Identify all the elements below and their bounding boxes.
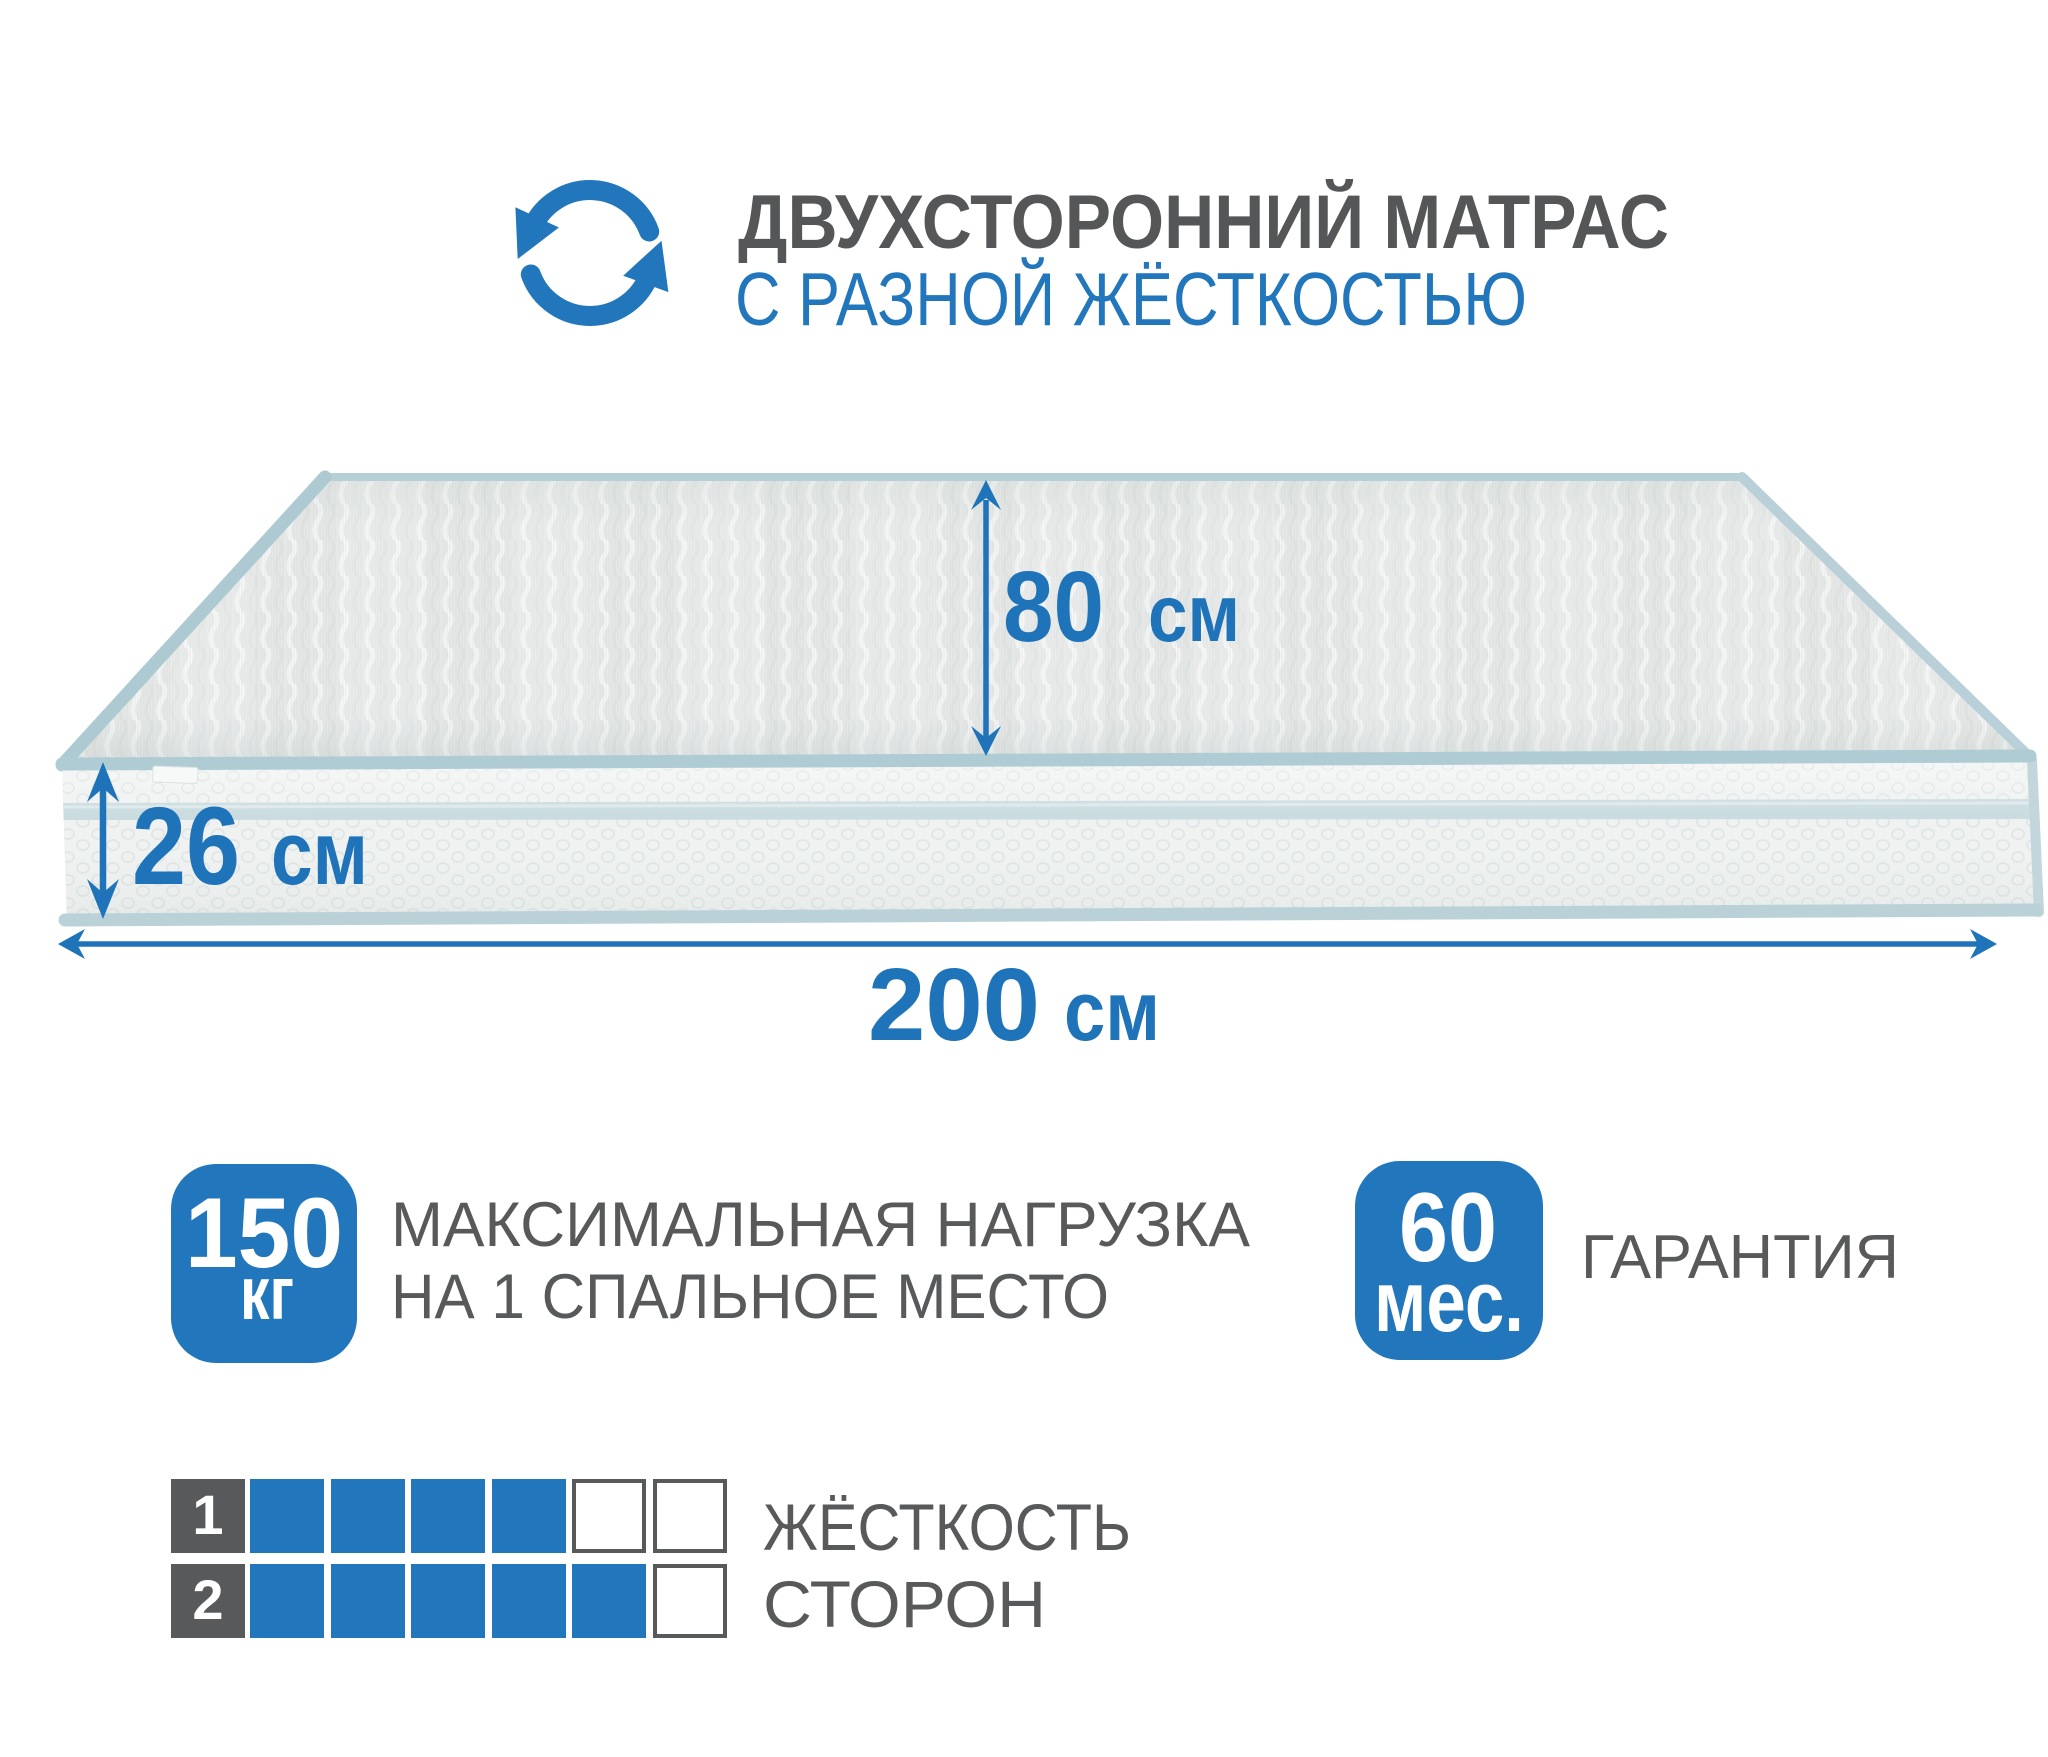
svg-text:СТОРОН: СТОРОН	[763, 1567, 1046, 1641]
svg-text:С РАЗНОЙ ЖЁСТКОСТЬЮ: С РАЗНОЙ ЖЁСТКОСТЬЮ	[735, 257, 1527, 341]
svg-text:ДВУХСТОРОННИЙ МАТРАС: ДВУХСТОРОННИЙ МАТРАС	[738, 179, 1669, 265]
svg-text:ГАРАНТИЯ: ГАРАНТИЯ	[1581, 1223, 1899, 1292]
svg-text:ЖЁСТКОСТЬ: ЖЁСТКОСТЬ	[763, 1490, 1131, 1564]
svg-text:кг: кг	[240, 1251, 294, 1335]
svg-text:26: 26	[132, 785, 240, 908]
svg-text:2: 2	[192, 1568, 223, 1631]
svg-text:200: 200	[868, 947, 1040, 1062]
svg-text:80: 80	[1003, 551, 1104, 663]
svg-text:МАКСИМАЛЬНАЯ НАГРУЗКА: МАКСИМАЛЬНАЯ НАГРУЗКА	[391, 1190, 1250, 1260]
svg-text:см: см	[1148, 569, 1240, 659]
svg-text:мес.: мес.	[1374, 1254, 1524, 1350]
svg-text:см: см	[271, 804, 368, 904]
svg-text:см: см	[1064, 964, 1160, 1058]
svg-text:1: 1	[192, 1483, 223, 1546]
svg-text:НА 1 СПАЛЬНОЕ МЕСТО: НА 1 СПАЛЬНОЕ МЕСТО	[391, 1262, 1109, 1332]
